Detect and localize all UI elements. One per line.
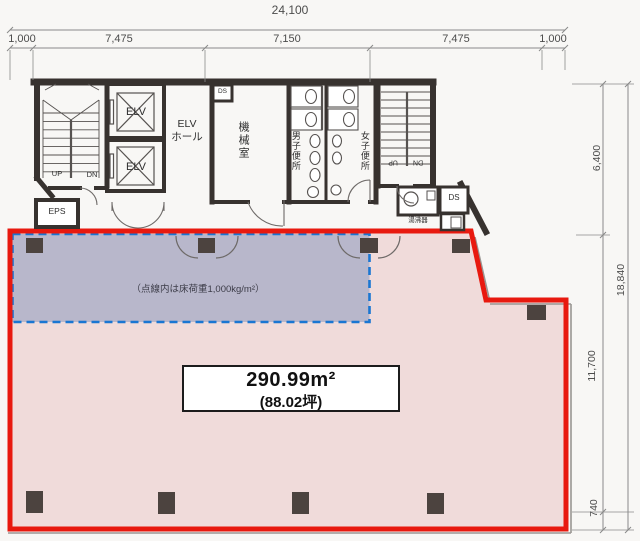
area-label-box: 290.99m² (88.02坪) [182,365,400,412]
load-area-overlay [13,234,370,322]
room-label-elevator-2: ELV [112,161,160,173]
room-label-womens-toilet: 女子便所 [359,131,369,171]
elevator-shafts [107,84,164,191]
dim-top-seg-4: 7,475 [426,33,486,45]
area-value-tsubo: (88.02坪) [184,391,398,412]
room-label-elevator-1: ELV [112,106,160,118]
dim-right-mid: 11,700 [587,350,599,381]
room-label-ds-closet: DS [213,88,232,95]
stair-right-dn-label: DN [406,158,430,166]
stair-right-up-label: UP [381,158,405,166]
staircase-left [43,84,99,178]
floor-plan-linework [0,0,640,541]
room-label-ds-right: DS [440,194,468,203]
room-label-water-heater: 湯沸器 [397,217,439,224]
dim-right-upper: 6,400 [592,145,604,171]
floor-load-note: （点線内は床荷重1,000kg/m²） [73,285,323,295]
dim-right-bottom: 740 [589,499,601,517]
dim-top-seg-2: 7,475 [89,33,149,45]
dim-top-total: 24,100 [245,4,335,17]
staircase-right [381,92,430,166]
room-label-elv-hall-line1: ELV [164,119,210,131]
stair-left-dn-label: DN [79,171,105,179]
room-label-machine-room: 機械室 [237,121,249,160]
room-label-elv-hall-line2: ホール [164,132,210,144]
dim-top-seg-5: 1,000 [531,33,575,45]
dim-top-seg-1: 1,000 [0,33,44,45]
floor-plan: 24,100 1,000 7,475 7,150 7,475 1,000 6,4… [0,0,640,541]
room-label-mens-toilet: 男子便所 [290,131,300,171]
dim-right-total: 18,840 [616,264,628,296]
room-label-eps: EPS [36,207,78,216]
dim-top-seg-3: 7,150 [257,33,317,45]
stair-left-up-label: UP [44,170,70,178]
area-value-m2: 290.99m² [184,369,398,392]
